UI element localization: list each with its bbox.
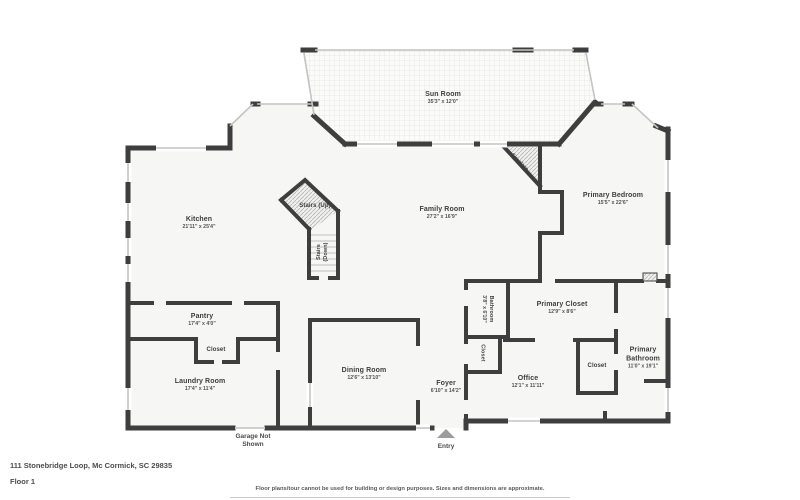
room-label-stairs-down: Stairs (Down) (316, 235, 330, 269)
bottom-divider (230, 497, 570, 498)
room-label-foyer: Foyer 6'10" x 14'2" (431, 379, 461, 395)
room-label-dining-room: Dining Room 12'6" x 13'10" (342, 366, 387, 382)
room-label-pantry: Pantry 17'4" x 4'0" (188, 312, 216, 328)
built-in-hatch (643, 273, 657, 281)
garage-note: Garage Not Shown (227, 433, 279, 449)
room-label-office: Office 12'1" x 11'11" (512, 374, 545, 390)
disclaimer-text: Floor plans/tour cannot be used for buil… (0, 486, 800, 492)
address-text: 111 Stonebridge Loop, Mc Cormick, SC 298… (10, 461, 172, 470)
floorplan-page: Sun Room 35'3" x 12'0" Fireplace Primary… (0, 0, 800, 500)
room-label-primary-closet: Primary Closet 12'9" x 8'6" (537, 300, 588, 316)
room-label-closet-bedroom: Closet (588, 363, 607, 371)
room-label-bathroom: Bathroom 3'8" x 6'10" (480, 295, 494, 323)
room-label-closet-pantry: Closet (207, 347, 226, 355)
floor-label: Floor 1 (10, 477, 35, 486)
room-label-laundry-room: Laundry Room 17'4" x 11'4" (175, 377, 226, 393)
room-label-stairs-up: Stairs (Up) (299, 203, 330, 211)
floorplan-canvas (0, 0, 800, 500)
entry-arrow-icon (437, 429, 455, 438)
room-label-sun-room: Sun Room 35'3" x 12'0" (425, 90, 461, 106)
room-label-closet-hall: Closet (478, 344, 485, 361)
room-label-primary-bathroom: Primary Bathroom 11'0" x 19'1" (620, 346, 666, 371)
room-label-family-room: Family Room 27'2" x 16'9" (419, 205, 464, 221)
entry-label: Entry (438, 443, 455, 451)
room-label-kitchen: Kitchen 21'11" x 25'4" (182, 215, 215, 231)
room-label-primary-bedroom: Primary Bedroom 15'5" x 22'6" (583, 191, 643, 207)
